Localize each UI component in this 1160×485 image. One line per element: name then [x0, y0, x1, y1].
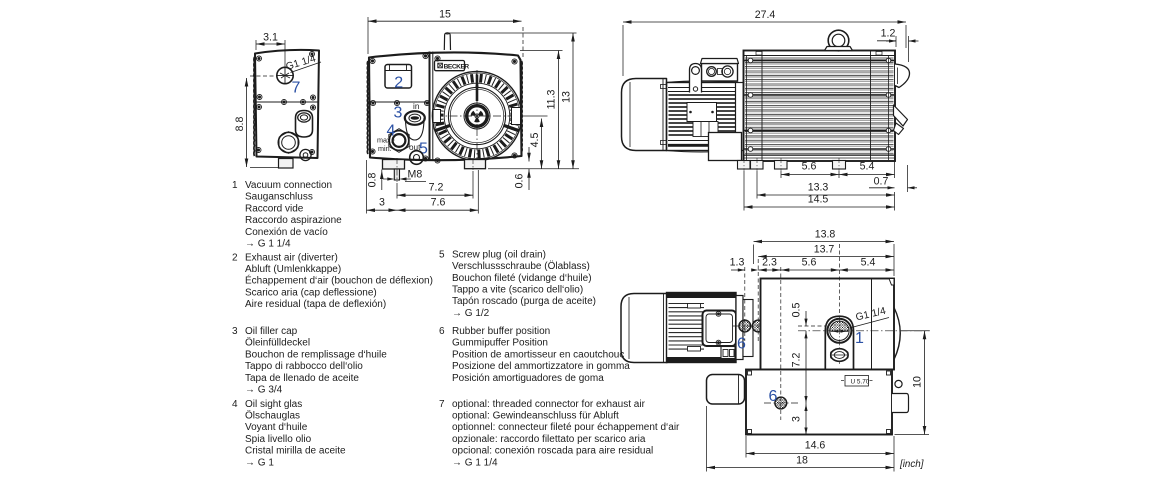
svg-text:optionnel: connecteur fileté p: optionnel: connecteur fileté pour échapp… [452, 422, 680, 433]
svg-text:Tappo di rabbocco dell‘olio: Tappo di rabbocco dell‘olio [245, 361, 363, 372]
svg-text:Raccord vide: Raccord vide [245, 203, 304, 214]
svg-text:5.6: 5.6 [802, 257, 817, 269]
svg-text:Abluft (Umlenkkappe): Abluft (Umlenkkappe) [245, 264, 341, 275]
svg-text:Rubber buffer position: Rubber buffer position [452, 326, 550, 337]
svg-text:18: 18 [796, 455, 808, 467]
svg-text:Conexión de vacío: Conexión de vacío [245, 227, 328, 238]
svg-text:→ G 1/2: → G 1/2 [452, 308, 490, 319]
svg-text:0.7: 0.7 [874, 176, 889, 188]
svg-text:Posizione del ammortizzatore i: Posizione del ammortizzatore in gomma [452, 361, 630, 372]
svg-text:Tapón roscado (purga de aceite: Tapón roscado (purga de aceite) [452, 296, 596, 307]
svg-text:min.: min. [378, 144, 392, 153]
svg-text:13.7: 13.7 [814, 244, 835, 256]
svg-text:Spia livello olio: Spia livello olio [245, 434, 312, 445]
svg-text:Screw plug (oil drain): Screw plug (oil drain) [452, 249, 546, 260]
svg-text:7: 7 [439, 399, 445, 410]
svg-text:Scarico aria (cap deflessione): Scarico aria (cap deflessione) [245, 287, 377, 298]
svg-text:Gummipuffer Position: Gummipuffer Position [452, 338, 548, 349]
svg-text:5.4: 5.4 [861, 257, 876, 269]
svg-text:→ G 1: → G 1 [245, 457, 274, 468]
svg-text:Sauganschluss: Sauganschluss [245, 192, 313, 203]
svg-text:optional: threaded connector f: optional: threaded connector for exhaust… [452, 399, 646, 410]
svg-text:1: 1 [855, 330, 864, 347]
svg-text:13: 13 [561, 91, 573, 103]
svg-text:6: 6 [439, 326, 445, 337]
svg-text:→ G 3/4: → G 3/4 [245, 385, 283, 396]
svg-text:0.5: 0.5 [791, 303, 803, 318]
svg-text:Cristal mirilla de aceite: Cristal mirilla de aceite [245, 446, 346, 457]
svg-text:1.3: 1.3 [730, 257, 745, 269]
svg-text:2: 2 [232, 252, 238, 263]
svg-text:Échappement d‘air (bouchon de: Échappement d‘air (bouchon de déflexion) [245, 274, 433, 287]
svg-text:→ G 1 1/4: → G 1 1/4 [452, 457, 498, 468]
svg-text:13.3: 13.3 [808, 182, 829, 194]
svg-text:14.6: 14.6 [805, 440, 826, 452]
svg-text:4.5: 4.5 [529, 133, 541, 148]
svg-text:1: 1 [232, 180, 238, 191]
svg-text:[inch]: [inch] [899, 459, 924, 470]
svg-text:in: in [413, 102, 420, 111]
svg-text:7: 7 [292, 80, 301, 97]
svg-text:10: 10 [912, 376, 924, 388]
svg-text:BECKER: BECKER [444, 64, 470, 71]
svg-text:Posición amortiguadores de gom: Posición amortiguadores de goma [452, 373, 604, 384]
svg-text:3: 3 [394, 105, 403, 122]
svg-text:3: 3 [791, 416, 803, 422]
svg-text:Position de amortisseur en cao: Position de amortisseur en caoutchouc [452, 349, 624, 360]
svg-text:5: 5 [439, 249, 445, 260]
svg-text:Vacuum connection: Vacuum connection [245, 180, 332, 191]
svg-text:14.5: 14.5 [808, 194, 829, 206]
svg-text:7.2: 7.2 [791, 353, 803, 368]
svg-text:optional: Gewindeanschluss für: optional: Gewindeanschluss für Abluft [452, 411, 619, 422]
svg-text:7.6: 7.6 [431, 197, 446, 209]
svg-text:0.6: 0.6 [514, 174, 526, 189]
svg-text:27.4: 27.4 [755, 9, 776, 21]
svg-text:U 5.70: U 5.70 [851, 378, 870, 385]
svg-text:7.2: 7.2 [429, 182, 444, 194]
svg-text:Bouchon de remplissage d‘huile: Bouchon de remplissage d‘huile [245, 349, 387, 360]
svg-text:Oil sight glas: Oil sight glas [245, 399, 302, 410]
svg-text:Exhaust air (diverter): Exhaust air (diverter) [245, 252, 338, 263]
svg-text:Aire residual (tapa de deflexi: Aire residual (tapa de deflexión) [245, 299, 386, 310]
svg-text:1.2: 1.2 [881, 28, 896, 40]
svg-text:Oil filler cap: Oil filler cap [245, 326, 298, 337]
svg-text:Verschlussschraube (Ölablass): Verschlussschraube (Ölablass) [452, 260, 590, 272]
svg-text:3: 3 [379, 197, 385, 209]
svg-text:8.8: 8.8 [234, 117, 246, 132]
svg-text:Raccordo aspirazione: Raccordo aspirazione [245, 215, 342, 226]
svg-text:Tappo a vite (scarico dell‘oli: Tappo a vite (scarico dell‘olio) [452, 285, 583, 296]
svg-text:opcional: conexión roscada par: opcional: conexión roscada para aire res… [452, 446, 653, 457]
svg-text:opzionale: raccordo filettato: opzionale: raccordo filettato per scaric… [452, 434, 646, 445]
svg-text:Ölschauglas: Ölschauglas [245, 410, 300, 422]
svg-text:5.4: 5.4 [860, 161, 875, 173]
svg-text:5.6: 5.6 [802, 161, 817, 173]
svg-text:11.3: 11.3 [546, 89, 558, 109]
svg-text:4: 4 [232, 399, 238, 410]
svg-text:15: 15 [439, 9, 451, 21]
svg-text:6: 6 [737, 336, 746, 353]
svg-text:Voyant d‘huile: Voyant d‘huile [245, 422, 308, 433]
svg-text:Öleinfülldeckel: Öleinfülldeckel [245, 337, 310, 349]
svg-text:6: 6 [769, 388, 778, 405]
svg-text:2: 2 [394, 75, 403, 92]
svg-text:Bouchon fileté (vidange d‘huil: Bouchon fileté (vidange d‘huile) [452, 273, 592, 284]
svg-text:3: 3 [232, 326, 238, 337]
svg-text:→ G 1 1/4: → G 1 1/4 [245, 239, 291, 250]
svg-text:13.8: 13.8 [815, 229, 836, 241]
svg-text:3.1: 3.1 [263, 32, 278, 44]
svg-text:0.8: 0.8 [367, 173, 379, 188]
svg-text:2.3: 2.3 [762, 257, 777, 269]
svg-text:Tapa de llenado de aceite: Tapa de llenado de aceite [245, 373, 359, 384]
